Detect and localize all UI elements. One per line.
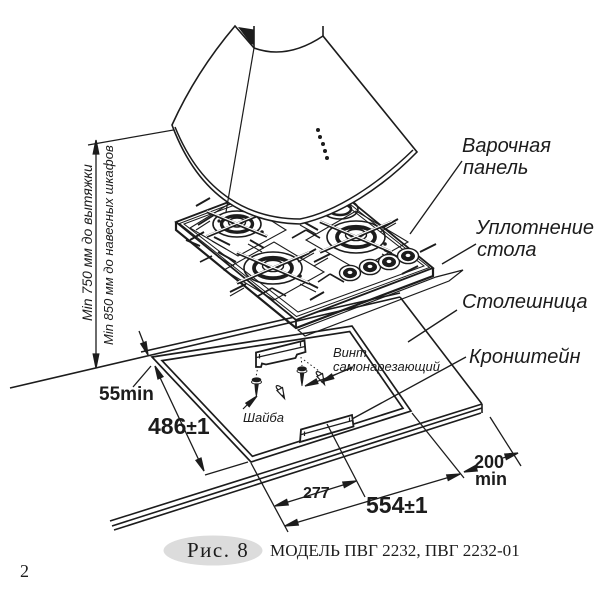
svg-text:стола: стола <box>477 239 537 261</box>
svg-text:554±1: 554±1 <box>366 492 428 518</box>
svg-text:277: 277 <box>303 485 330 502</box>
svg-text:Столешница: Столешница <box>462 291 587 313</box>
svg-text:Min 850 мм до навесных шкафов: Min 850 мм до навесных шкафов <box>101 145 116 345</box>
svg-text:Рис. 8: Рис. 8 <box>187 538 249 562</box>
svg-text:Уплотнение: Уплотнение <box>475 217 594 239</box>
svg-text:Варочная: Варочная <box>462 135 551 157</box>
svg-text:55min: 55min <box>99 384 154 405</box>
svg-text:486±1: 486±1 <box>148 413 210 439</box>
svg-text:Винт: Винт <box>333 345 367 360</box>
svg-text:Шайба: Шайба <box>243 410 284 425</box>
svg-text:МОДЕЛЬ ПВГ 2232, ПВГ 2232-01: МОДЕЛЬ ПВГ 2232, ПВГ 2232-01 <box>270 541 520 560</box>
svg-text:Кронштейн: Кронштейн <box>469 346 581 368</box>
svg-text:min: min <box>475 469 507 489</box>
svg-text:Min 750 мм до вытяжки: Min 750 мм до вытяжки <box>79 164 95 321</box>
svg-text:панель: панель <box>463 157 528 179</box>
svg-text:2: 2 <box>20 561 29 581</box>
svg-text:самонарезающий: самонарезающий <box>333 359 440 374</box>
